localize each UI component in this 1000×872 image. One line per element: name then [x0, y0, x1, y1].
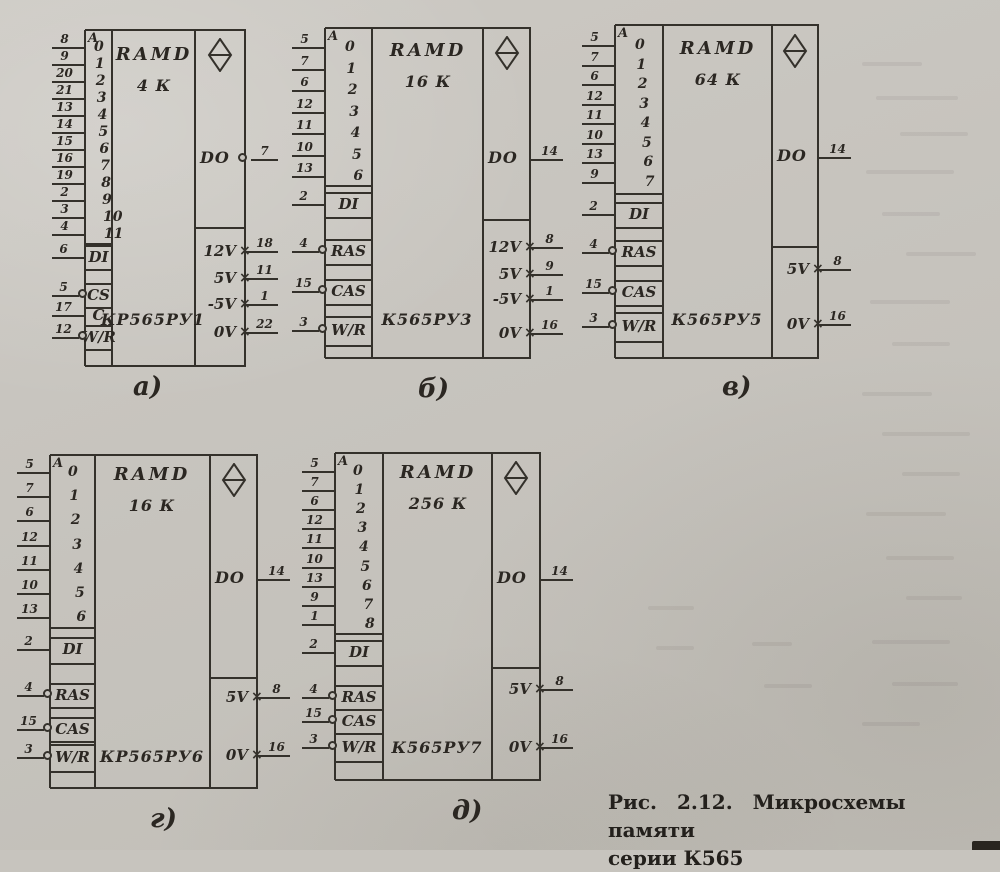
cell-border [615, 202, 663, 204]
power-label: 12V [197, 242, 236, 260]
control-pin-line [292, 251, 319, 253]
inversion-circle [328, 741, 337, 750]
pin-number: 3 [52, 202, 77, 216]
address-cell-border [325, 185, 372, 187]
address-bit-label: 5 [75, 585, 85, 601]
address-pin-line [292, 69, 325, 71]
pin-number: 9 [302, 590, 327, 604]
pin-number: 13 [292, 161, 317, 175]
power-label: 5V [212, 688, 248, 706]
cell-border [50, 717, 95, 719]
ghost-text-artifact [862, 62, 922, 66]
chip-border-left [334, 453, 336, 780]
ghost-text-artifact [866, 512, 946, 516]
inversion-circle [78, 289, 87, 298]
chip-item-label: в) [722, 372, 751, 402]
pin-number: 13 [582, 147, 607, 161]
ghost-text-artifact [906, 596, 962, 600]
address-pin-line [302, 586, 335, 588]
pin-number: 12 [582, 89, 607, 103]
address-pin-line [292, 176, 325, 178]
ghost-text-artifact [882, 212, 940, 216]
control-pin-line [292, 291, 319, 293]
address-bit-label: 4 [98, 107, 108, 123]
inversion-circle [78, 331, 87, 340]
inversion-circle [43, 751, 52, 760]
cell-border [325, 239, 372, 241]
power-divider [210, 677, 257, 679]
pin-number: 12 [52, 322, 75, 336]
page-corner-mark [972, 841, 1000, 850]
part-number: КР565РУ1 [78, 310, 228, 329]
power-pin-line [245, 278, 278, 280]
address-pin-line [582, 65, 615, 67]
address-bit-label: 6 [643, 154, 653, 170]
chip-border-bottom [335, 779, 540, 781]
ghost-text-artifact [872, 640, 950, 644]
inversion-circle [318, 324, 327, 333]
address-pin-line [292, 133, 325, 135]
chip-border-bottom [50, 787, 257, 789]
address-pin-line [17, 496, 50, 498]
address-pin-line [302, 624, 335, 626]
pin-number: 15 [582, 277, 605, 291]
pin-number: 16 [826, 309, 849, 323]
power-pin-line [530, 299, 563, 301]
data-out-label: DO [215, 568, 245, 587]
pin-number: 3 [17, 742, 40, 756]
part-number: К565РУ7 [362, 738, 512, 757]
ghost-text-artifact [902, 472, 960, 476]
address-bit-label: 9 [102, 192, 112, 208]
address-pin-line [17, 520, 50, 522]
cell-border [50, 741, 95, 743]
part-number: КР565РУ6 [77, 747, 227, 766]
pin-number: 8 [538, 232, 561, 246]
power-label: 12V [485, 238, 521, 256]
power-pin-line [818, 324, 851, 326]
address-pin-line [302, 547, 335, 549]
block-name: RAMD [363, 40, 493, 61]
address-pin-line [292, 112, 325, 114]
cell-border [325, 304, 372, 306]
address-bit-label: 2 [71, 512, 81, 528]
control-pin-line [302, 697, 329, 699]
pin-number: 15 [52, 134, 77, 148]
address-bit-label: 1 [355, 482, 365, 498]
pin-number: 3 [292, 315, 315, 329]
power-pin-line [245, 304, 278, 306]
address-pin-line [292, 47, 325, 49]
chip-border-left [49, 455, 51, 788]
data-out-label: DO [488, 148, 518, 167]
pin-number: 3 [582, 311, 605, 325]
pin-number: 2 [17, 634, 40, 648]
capacity-label: 64 К [653, 70, 783, 89]
address-group-label: A [338, 454, 348, 469]
cell-border [85, 269, 112, 271]
control-pin-line [17, 649, 50, 651]
pin-number: 16 [265, 740, 288, 754]
capacity-label: 16 К [87, 496, 217, 515]
inversion-circle [43, 689, 52, 698]
ghost-text-artifact [656, 646, 694, 650]
ghost-text-artifact [870, 300, 950, 304]
address-bit-label: 5 [361, 559, 371, 575]
cell-border [50, 707, 95, 709]
data-out-label: DO [777, 146, 807, 165]
control-pin-line [52, 257, 85, 259]
part-number: К565РУ5 [642, 310, 792, 329]
power-pin-line [818, 269, 851, 271]
cell-border [335, 665, 383, 667]
control-pin-line [17, 695, 44, 697]
pin-number: 10 [292, 140, 317, 154]
data-out-pin-line [540, 579, 573, 581]
cell-border [50, 744, 95, 746]
address-group-label: A [328, 29, 338, 44]
address-bit-label: 0 [635, 37, 645, 53]
cell-border [615, 341, 663, 343]
inversion-circle [608, 246, 617, 255]
address-bit-label: 6 [362, 578, 372, 594]
power-pin-line [540, 689, 573, 691]
control-pin-line [17, 757, 44, 759]
pin-number: 5 [292, 32, 317, 46]
pin-number: 6 [292, 75, 317, 89]
address-bit-label: 0 [345, 39, 355, 55]
address-bit-label: 2 [638, 76, 648, 92]
ghost-text-artifact [892, 682, 958, 686]
pin-number: 5 [52, 280, 75, 294]
cell-border [335, 733, 383, 735]
ghost-text-artifact [900, 132, 968, 136]
ghost-text-artifact [876, 96, 958, 100]
pin-number: 10 [302, 552, 327, 566]
cell-border [325, 279, 372, 281]
pin-number: 7 [17, 481, 42, 495]
address-pin-line [302, 490, 335, 492]
chip-border-top [335, 452, 540, 454]
ghost-text-artifact [882, 432, 970, 436]
address-bit-label: 7 [100, 158, 110, 174]
address-pin-line [292, 90, 325, 92]
address-bit-label: 0 [353, 463, 363, 479]
pin-number: 6 [582, 69, 607, 83]
pin-number: 9 [52, 49, 77, 63]
cell-border [615, 240, 663, 242]
pin-number: 14 [265, 564, 288, 578]
block-name: RAMD [653, 38, 783, 59]
cell-border [335, 709, 383, 711]
address-bit-label: 7 [645, 174, 655, 190]
control-pin-line [302, 721, 329, 723]
pin-number: 16 [538, 318, 561, 332]
cell-border [85, 349, 112, 351]
ghost-text-artifact [648, 606, 694, 610]
pin-number: 5 [582, 30, 607, 44]
address-bit-label: 3 [639, 96, 649, 112]
address-pin-line [17, 472, 50, 474]
power-pin-line [245, 251, 278, 253]
chip-border-top [50, 454, 257, 456]
control-pin-line [582, 326, 609, 328]
cell-border [615, 305, 663, 307]
address-pin-line [17, 617, 50, 619]
pin-number: 10 [582, 128, 607, 142]
address-bit-label: 5 [352, 147, 362, 163]
address-bit-label: 8 [101, 175, 111, 191]
pin-number: 4 [582, 237, 605, 251]
address-bit-label: 5 [642, 135, 652, 151]
cell-border [615, 227, 663, 229]
control-pin-line [302, 652, 335, 654]
address-bit-label: 3 [349, 104, 359, 120]
three-state-output-icon [503, 461, 529, 495]
data-out-pin-line [251, 159, 278, 161]
ghost-text-artifact [866, 170, 954, 174]
address-bit-label: 4 [641, 115, 651, 131]
control-pin-line [292, 330, 319, 332]
address-pin-line [302, 471, 335, 473]
chip-item-label: д) [452, 796, 482, 826]
pin-number: 8 [265, 682, 288, 696]
power-pin-line [257, 697, 290, 699]
block-name: RAMD [87, 464, 217, 485]
pin-number: 4 [52, 219, 77, 233]
pin-number: 2 [302, 637, 325, 651]
pin-number: 11 [292, 118, 317, 132]
data-out-inversion-circle [238, 153, 247, 162]
address-cell-border [50, 627, 95, 629]
chip-border-bottom [325, 357, 530, 359]
pin-number: 8 [548, 674, 571, 688]
chip-item-label: г) [150, 804, 177, 834]
cell-border [335, 640, 383, 642]
cell-border [85, 283, 112, 285]
part-number: К565РУ3 [352, 310, 502, 329]
pin-number: 17 [52, 300, 75, 314]
chip-border-top [85, 29, 245, 31]
cell-border [85, 245, 112, 247]
pin-number: 10 [17, 578, 42, 592]
pin-number: 2 [582, 199, 605, 213]
pin-number: 20 [52, 66, 77, 80]
power-label: 5V [485, 265, 521, 283]
address-pin-line [302, 509, 335, 511]
three-state-output-icon [782, 34, 808, 68]
power-pin-line [530, 247, 563, 249]
data-out-label: DO [200, 148, 230, 167]
block-name: RAMD [89, 44, 219, 65]
chip-border-left [614, 25, 616, 358]
address-cell-border [335, 633, 383, 635]
pin-number: 12 [302, 513, 327, 527]
inversion-circle [328, 715, 337, 724]
pin-number: 21 [52, 83, 77, 97]
cell-border [50, 771, 95, 773]
pin-number: 5 [17, 457, 42, 471]
power-pin-line [530, 333, 563, 335]
inversion-circle [318, 285, 327, 294]
capacity-label: 256 К [373, 494, 503, 513]
pin-number: 22 [253, 317, 276, 331]
pin-number: 1 [538, 284, 561, 298]
pin-number: 14 [826, 142, 849, 156]
chip-item-label: а) [133, 372, 162, 402]
address-pin-line [582, 123, 615, 125]
pin-number: 4 [292, 236, 315, 250]
pin-number: 14 [538, 144, 561, 158]
address-group-label: A [618, 26, 628, 41]
power-pin-line [257, 755, 290, 757]
pin-number: 11 [302, 532, 327, 546]
address-bit-label: 7 [364, 597, 374, 613]
pin-number: 7 [302, 475, 327, 489]
inversion-circle [43, 723, 52, 732]
chip-border-bottom [85, 365, 245, 367]
address-bit-label: 3 [72, 537, 82, 553]
pin-number: 2 [52, 185, 77, 199]
ghost-text-artifact [764, 684, 812, 688]
address-pin-line [17, 593, 50, 595]
pin-number: 15 [17, 714, 40, 728]
chip-border-right [244, 29, 246, 367]
control-pin-line [52, 337, 79, 339]
pin-number: 7 [582, 50, 607, 64]
ghost-text-artifact [862, 392, 932, 396]
cell-border [325, 345, 372, 347]
pin-number: 13 [17, 602, 42, 616]
power-divider [492, 667, 540, 669]
address-bit-label: 2 [348, 82, 358, 98]
cell-border [325, 217, 372, 219]
data-out-pin-line [818, 157, 851, 159]
address-pin-line [17, 569, 50, 571]
address-bit-label: 4 [359, 539, 369, 555]
cell-border [615, 265, 663, 267]
address-bit-label: 3 [358, 520, 368, 536]
power-divider [772, 246, 818, 248]
pin-number: 14 [52, 117, 77, 131]
pin-number: 12 [17, 530, 42, 544]
control-pin-line [582, 292, 609, 294]
inversion-circle [608, 286, 617, 295]
inversion-circle [318, 245, 327, 254]
address-pin-line [17, 545, 50, 547]
address-bit-label: 1 [346, 61, 356, 77]
pin-number: 2 [292, 189, 315, 203]
pin-number: 16 [52, 151, 77, 165]
control-pin-line [17, 729, 44, 731]
address-pin-line [582, 143, 615, 145]
pin-number: 11 [582, 108, 607, 122]
address-pin-line [582, 104, 615, 106]
address-pin-line [292, 155, 325, 157]
pin-number: 16 [548, 732, 571, 746]
address-bit-label: 5 [99, 124, 109, 140]
inversion-circle [608, 320, 617, 329]
pin-number: 12 [292, 97, 317, 111]
power-label: 5V [774, 260, 809, 278]
chip-border-bottom [615, 357, 818, 359]
power-pin-line [540, 747, 573, 749]
address-pin-line [302, 528, 335, 530]
address-bit-label: 8 [365, 616, 375, 632]
pin-number: 1 [253, 289, 276, 303]
data-out-pin-line [257, 579, 290, 581]
address-pin-line [582, 162, 615, 164]
control-pin-line [292, 204, 325, 206]
address-bit-label: 10 [103, 209, 122, 225]
address-bit-label: 4 [74, 561, 84, 577]
chip-border-top [325, 27, 530, 29]
capacity-label: 4 К [89, 76, 219, 95]
address-group-label: A [53, 456, 63, 471]
pin-number: 13 [52, 100, 77, 114]
pin-number: 5 [302, 456, 327, 470]
pin-number: 19 [52, 168, 77, 182]
block-name: RAMD [373, 462, 503, 483]
control-pin-line [52, 295, 79, 297]
address-bit-label: 0 [68, 464, 78, 480]
capacity-label: 16 К [363, 72, 493, 91]
pin-number: 8 [52, 32, 77, 46]
pin-number: 18 [253, 236, 276, 250]
cell-border [50, 663, 95, 665]
power-label: 5V [494, 680, 531, 698]
address-pin-line [302, 605, 335, 607]
address-bit-label: 1 [69, 488, 79, 504]
address-bit-label: 11 [104, 226, 123, 242]
control-pin-line [582, 214, 615, 216]
address-bit-label: 6 [99, 141, 109, 157]
control-pin-line [302, 747, 329, 749]
address-bit-label: 6 [353, 168, 363, 184]
pin-number: 7 [253, 144, 276, 158]
address-pin-line [582, 182, 615, 184]
ghost-text-artifact [886, 556, 954, 560]
address-pin-line [582, 84, 615, 86]
cell-border [50, 683, 95, 685]
scanned-book-page: A809120221313414515616719829310411DI6CS5… [0, 0, 1000, 850]
figure-caption-line-2: серии К565 [608, 844, 1000, 872]
pin-number: 7 [292, 54, 317, 68]
address-pin-line [52, 234, 85, 236]
pin-number: 6 [17, 505, 42, 519]
power-divider [195, 227, 245, 229]
power-pin-line [530, 274, 563, 276]
pin-number: 4 [17, 680, 40, 694]
ghost-text-artifact [752, 642, 792, 646]
pin-number: 9 [582, 167, 607, 181]
power-label: -5V [485, 290, 521, 308]
cell-border [50, 637, 95, 639]
address-bit-label: 1 [636, 57, 646, 73]
pin-number: 6 [52, 242, 75, 256]
pin-number: 4 [302, 682, 325, 696]
figure-caption-line-1: Рис. 2.12. Микросхемы памяти [608, 788, 1000, 844]
power-label: 5V [197, 269, 236, 287]
cell-border [325, 264, 372, 266]
cell-border [325, 192, 372, 194]
chip-border-right [256, 454, 258, 789]
three-state-output-icon [494, 36, 520, 70]
data-out-pin-line [530, 159, 563, 161]
three-state-output-icon [221, 463, 247, 497]
pin-number: 15 [292, 276, 315, 290]
data-out-label: DO [497, 568, 527, 587]
